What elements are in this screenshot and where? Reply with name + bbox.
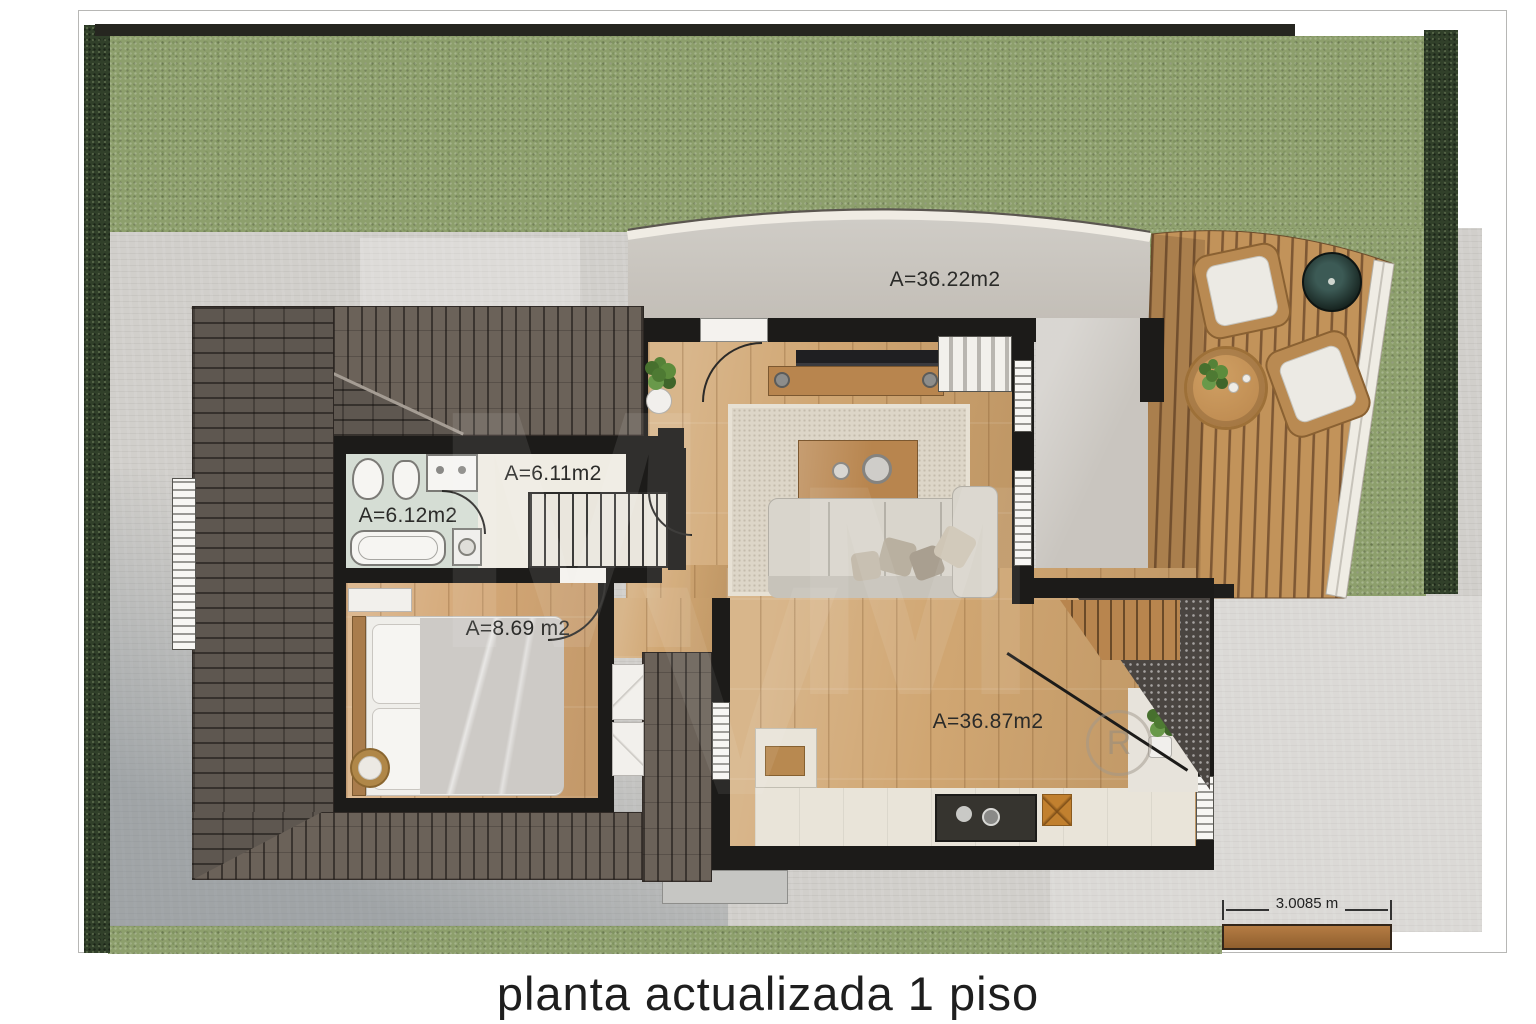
living-door-gap <box>700 318 768 342</box>
roof-porch-column <box>642 652 712 882</box>
living-window-1 <box>1014 360 1032 432</box>
deck-armchair-1-cushion <box>1204 254 1279 328</box>
bath-sink-icon <box>352 458 384 500</box>
deck-table-cup-1 <box>1228 382 1239 393</box>
wall-bedroom-top-b <box>606 568 662 583</box>
deck-table-plant <box>1206 370 1218 382</box>
speaker-right <box>922 372 938 388</box>
terrace-area-label: A=36.22m2 <box>860 268 1030 292</box>
vanity-counter-icon <box>426 454 478 492</box>
main-window-right <box>1196 776 1214 840</box>
bed-pillow-1 <box>372 624 426 704</box>
wall-main-top-right <box>1012 578 1214 598</box>
fireplace-bowl-2 <box>982 808 1000 826</box>
terrace-side-strip <box>1036 318 1148 600</box>
roof-left-skylight <box>172 478 196 650</box>
bed-duvet <box>420 618 564 794</box>
closet-unit-2 <box>612 722 644 776</box>
bedroom-shelf <box>348 588 412 612</box>
deck-table-cup-2 <box>1242 374 1251 383</box>
main-room-area-label: A=36.87m2 <box>898 710 1078 734</box>
scale-tick-right <box>1390 900 1392 920</box>
sheet-title: planta actualizada 1 piso <box>0 966 1536 1021</box>
scale-wood-board <box>1222 924 1392 950</box>
wall-hall-stub <box>626 448 660 492</box>
living-plant-icon <box>652 368 666 382</box>
scale-tick-left <box>1222 900 1224 920</box>
table-decor-large <box>862 454 892 484</box>
speaker-left <box>774 372 790 388</box>
wall-terrace-stub <box>1140 318 1164 402</box>
hall-area-label: A=6.11m2 <box>478 462 628 486</box>
toilet-icon <box>392 460 420 500</box>
bedroom-area-label: A=8.69 m2 <box>428 617 608 641</box>
bathroom-area-label: A=6.12m2 <box>338 504 478 528</box>
wall-shelf-unit <box>938 336 1012 392</box>
scale-line-left <box>1226 909 1269 911</box>
main-window-left <box>712 702 730 780</box>
bedroom-door-gap <box>560 568 606 583</box>
tv-icon <box>796 350 938 366</box>
sofa-pillow-4 <box>850 550 882 582</box>
deck-round-table <box>1184 346 1268 430</box>
wall-bedroom-top-a <box>330 568 560 583</box>
scale-dimension-line: 3.0085 m <box>1222 898 1392 922</box>
interior-stairs <box>528 492 668 568</box>
closet-unit-1 <box>612 664 644 720</box>
side-counter-table <box>765 746 805 776</box>
fireplace-bowl-1 <box>956 806 972 822</box>
scale-length-label: 3.0085 m <box>1271 895 1344 912</box>
basket-blanket <box>358 756 382 780</box>
living-plant-pot <box>646 388 672 414</box>
scale-line-right <box>1345 909 1388 911</box>
living-window-2 <box>1014 470 1032 566</box>
wall-main-bottom <box>712 846 1214 870</box>
bathtub-inner <box>358 536 438 560</box>
table-decor-small <box>832 462 850 480</box>
washer-drum <box>458 538 476 556</box>
floor-plan-sheet: A=36.22m2 A=6.11m2 A=6.12m2 A=8.69 m2 A=… <box>0 0 1536 1024</box>
roof-left-band <box>192 306 334 880</box>
x-stool <box>1042 794 1072 826</box>
coffee-table <box>798 440 918 506</box>
sofa-cushion-line-1 <box>828 502 830 576</box>
fire-pit-dot <box>1328 278 1335 285</box>
tv-console <box>768 366 944 396</box>
vanity-faucet-dot-1 <box>436 466 444 474</box>
watermark-registered-badge: R <box>1086 710 1152 776</box>
vanity-faucet-dot-2 <box>458 466 466 474</box>
